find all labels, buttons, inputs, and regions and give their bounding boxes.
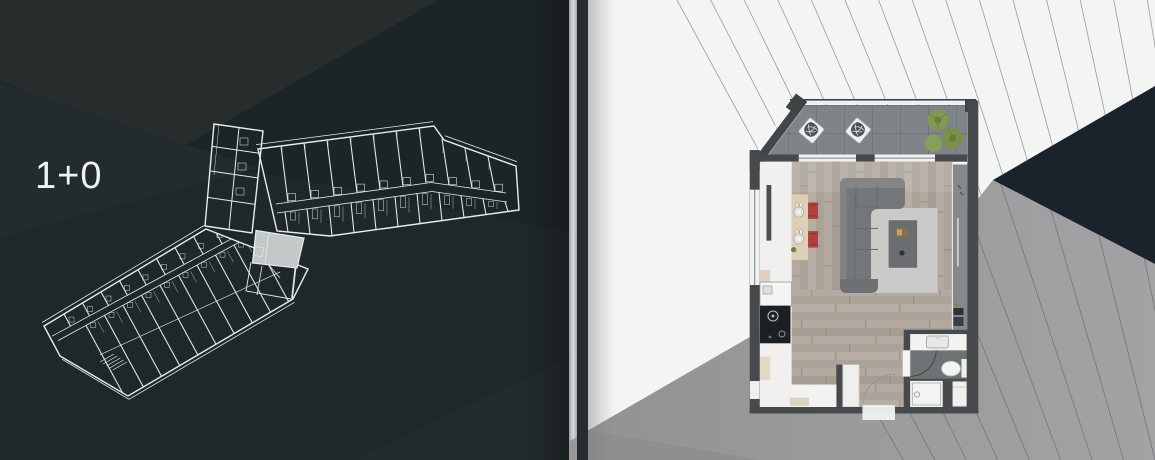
svg-text:1+0: 1+0: [35, 155, 102, 197]
